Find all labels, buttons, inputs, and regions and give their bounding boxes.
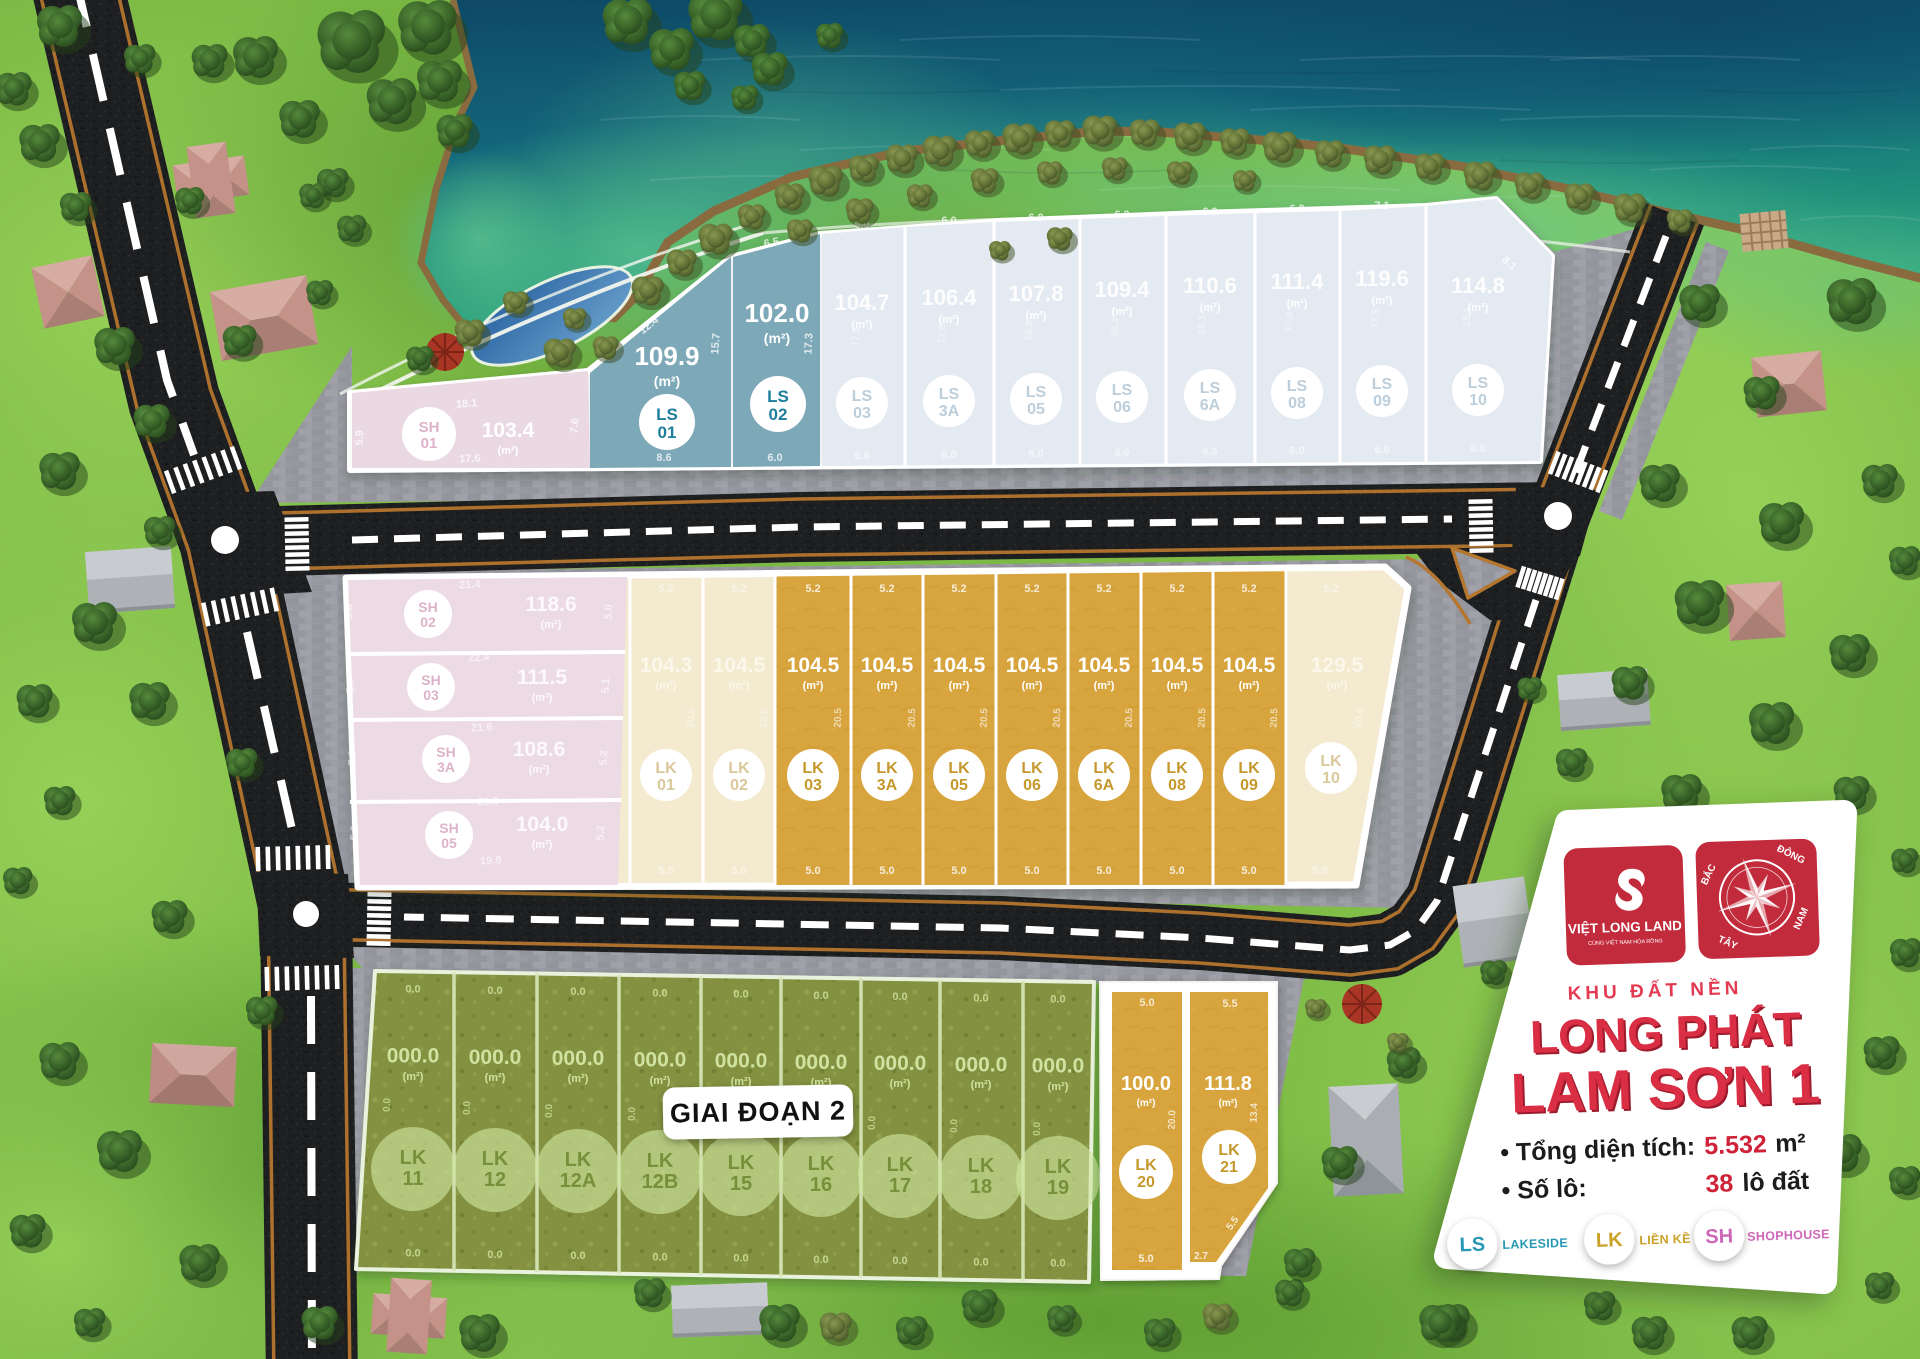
svg-text:5.0: 5.0 — [603, 604, 616, 620]
svg-text:(m²): (m²) — [485, 1072, 506, 1084]
svg-text:5.2: 5.2 — [1096, 583, 1111, 595]
svg-text:LK: LK — [887, 1154, 914, 1176]
svg-text:(m²): (m²) — [729, 680, 750, 692]
svg-text:0.0: 0.0 — [733, 1253, 748, 1265]
svg-text:17.8: 17.8 — [1284, 311, 1296, 331]
svg-text:LK: LK — [1238, 760, 1260, 777]
svg-text:LK: LK — [400, 1147, 427, 1169]
svg-text:000.0: 000.0 — [387, 1045, 440, 1068]
svg-text:(m²): (m²) — [529, 764, 550, 776]
svg-text:5.0: 5.0 — [347, 750, 360, 766]
svg-text:0.0: 0.0 — [627, 1106, 638, 1121]
svg-text:0.0: 0.0 — [570, 986, 585, 998]
svg-text:119.6: 119.6 — [1355, 266, 1409, 291]
svg-text:LS: LS — [1372, 376, 1393, 393]
svg-text:17.6: 17.6 — [459, 453, 481, 466]
svg-text:(m²): (m²) — [1112, 306, 1133, 318]
svg-text:LK: LK — [802, 760, 824, 777]
svg-text:02: 02 — [420, 614, 436, 630]
svg-text:6.0: 6.0 — [1202, 446, 1217, 458]
svg-text:0.0: 0.0 — [973, 992, 988, 1004]
svg-text:6.0: 6.0 — [1028, 212, 1043, 224]
svg-text:000.0: 000.0 — [715, 1050, 768, 1073]
svg-text:LK: LK — [728, 1152, 755, 1174]
svg-text:(m²): (m²) — [568, 1073, 589, 1085]
svg-text:SH: SH — [436, 744, 455, 760]
svg-text:17.3: 17.3 — [802, 333, 815, 355]
svg-text:01: 01 — [657, 777, 675, 794]
svg-text:03: 03 — [804, 777, 822, 794]
svg-text:19.9: 19.9 — [480, 854, 502, 867]
svg-text:5.0: 5.0 — [658, 865, 673, 877]
svg-text:LK: LK — [1021, 760, 1043, 777]
svg-text:LK: LK — [728, 760, 750, 777]
svg-text:5.0: 5.0 — [345, 678, 358, 694]
svg-text:104.5: 104.5 — [861, 654, 914, 677]
svg-text:104.7: 104.7 — [834, 290, 889, 315]
svg-text:SH: SH — [1705, 1225, 1734, 1248]
svg-text:LK: LK — [1135, 1157, 1157, 1174]
svg-text:5.2: 5.2 — [1323, 583, 1338, 595]
svg-text:0.0: 0.0 — [544, 1103, 555, 1118]
svg-text:(m²): (m²) — [498, 445, 519, 457]
svg-text:01: 01 — [658, 423, 677, 442]
svg-text:000.0: 000.0 — [795, 1051, 848, 1074]
svg-text:6.0: 6.0 — [1114, 447, 1129, 459]
svg-text:100.0: 100.0 — [1121, 1073, 1171, 1095]
svg-text:000.0: 000.0 — [955, 1053, 1008, 1076]
svg-text:5.0: 5.0 — [1138, 1253, 1153, 1265]
svg-text:LS: LS — [1112, 382, 1133, 399]
svg-text:20.5: 20.5 — [907, 708, 919, 728]
svg-text:5.2: 5.2 — [805, 583, 820, 595]
svg-text:5.2: 5.2 — [951, 583, 966, 595]
svg-text:(m²): (m²) — [1167, 680, 1188, 692]
svg-text:0.0: 0.0 — [867, 1115, 878, 1130]
svg-text:5.0: 5.0 — [1096, 865, 1111, 877]
svg-text:5.2: 5.2 — [1024, 583, 1039, 595]
svg-text:21.4: 21.4 — [459, 578, 482, 591]
svg-text:7.1: 7.1 — [1374, 200, 1389, 212]
svg-text:12A: 12A — [560, 1170, 597, 1192]
svg-text:5.0: 5.0 — [951, 865, 966, 877]
svg-text:000.0: 000.0 — [552, 1047, 605, 1070]
svg-text:LK: LK — [482, 1148, 509, 1170]
svg-text:18: 18 — [970, 1176, 992, 1198]
svg-text:0.0: 0.0 — [1032, 1121, 1043, 1136]
svg-text:6.0: 6.0 — [1114, 209, 1129, 221]
svg-text:(m²): (m²) — [403, 1071, 424, 1083]
svg-text:17.8: 17.8 — [937, 323, 949, 343]
svg-text:5.2: 5.2 — [595, 825, 608, 841]
svg-text:03: 03 — [423, 687, 439, 703]
svg-text:111.4: 111.4 — [1271, 269, 1324, 294]
svg-text:20.0: 20.0 — [1167, 1110, 1179, 1130]
svg-text:104.3: 104.3 — [640, 654, 693, 677]
svg-text:LK: LK — [647, 1150, 674, 1172]
svg-text:LK: LK — [968, 1155, 995, 1177]
svg-text:(m²): (m²) — [971, 1079, 992, 1091]
svg-text:0.0: 0.0 — [570, 1250, 585, 1262]
svg-text:12B: 12B — [642, 1171, 679, 1193]
svg-text:06: 06 — [1113, 399, 1131, 416]
svg-text:0.0: 0.0 — [382, 1097, 393, 1112]
svg-text:6.0: 6.0 — [941, 449, 956, 461]
svg-text:LS: LS — [1026, 384, 1047, 401]
svg-text:(m²): (m²) — [1137, 1098, 1156, 1109]
svg-text:05: 05 — [441, 835, 457, 851]
svg-text:lô đất: lô đất — [1742, 1167, 1810, 1197]
svg-text:(m²): (m²) — [1239, 680, 1260, 692]
svg-text:104.5: 104.5 — [1006, 654, 1059, 677]
svg-text:0.0: 0.0 — [892, 991, 907, 1003]
svg-text:(m²): (m²) — [890, 1078, 911, 1090]
svg-text:20.5: 20.5 — [1124, 708, 1136, 728]
svg-text:6.0: 6.0 — [1374, 444, 1389, 456]
svg-text:(m²): (m²) — [1219, 1098, 1238, 1109]
svg-text:15.7: 15.7 — [709, 333, 722, 355]
svg-text:5.0: 5.0 — [731, 865, 746, 877]
svg-text:109.9: 109.9 — [634, 341, 699, 371]
svg-text:LAKESIDE: LAKESIDE — [1502, 1236, 1568, 1252]
svg-text:104.5: 104.5 — [1078, 654, 1131, 677]
svg-text:3A: 3A — [877, 777, 898, 794]
svg-text:5.9: 5.9 — [354, 430, 367, 446]
svg-text:09: 09 — [1373, 393, 1391, 410]
svg-text:20.5: 20.5 — [833, 708, 845, 728]
svg-text:20.5: 20.5 — [1197, 708, 1209, 728]
svg-text:SH: SH — [421, 672, 440, 688]
svg-text:5.2: 5.2 — [731, 583, 746, 595]
svg-text:LIỀN KỀ: LIỀN KỀ — [1639, 1231, 1691, 1248]
svg-text:104.5: 104.5 — [933, 654, 986, 677]
svg-text:LS: LS — [767, 387, 789, 406]
svg-text:5.0: 5.0 — [1139, 997, 1154, 1009]
svg-text:LK: LK — [876, 760, 898, 777]
svg-text:02: 02 — [769, 405, 788, 424]
svg-text:20.5: 20.5 — [1269, 708, 1281, 728]
svg-text:• Số lô:: • Số lô: — [1501, 1174, 1587, 1205]
svg-text:106.4: 106.4 — [921, 285, 977, 310]
svg-text:000.0: 000.0 — [1032, 1054, 1085, 1077]
svg-text:6A: 6A — [1200, 397, 1221, 414]
svg-text:LK: LK — [808, 1153, 835, 1175]
svg-text:0.0: 0.0 — [487, 1249, 502, 1261]
svg-text:0.0: 0.0 — [733, 989, 748, 1001]
svg-text:15.1: 15.1 — [1462, 306, 1474, 326]
svg-text:103.4: 103.4 — [482, 419, 535, 442]
svg-text:5.532: 5.532 — [1704, 1130, 1767, 1160]
svg-text:6.0: 6.0 — [1289, 203, 1304, 215]
svg-text:5.2: 5.2 — [598, 750, 611, 766]
svg-text:5.0: 5.0 — [349, 825, 362, 841]
svg-text:(m²): (m²) — [654, 373, 680, 389]
svg-text:(m²): (m²) — [1022, 680, 1043, 692]
svg-text:108.6: 108.6 — [513, 738, 566, 761]
svg-text:18.1: 18.1 — [456, 397, 478, 411]
svg-text:5.2: 5.2 — [1169, 583, 1184, 595]
svg-text:(m²): (m²) — [1026, 310, 1047, 322]
svg-text:7.6: 7.6 — [568, 418, 581, 434]
svg-text:19: 19 — [1047, 1177, 1069, 1199]
svg-text:0.0: 0.0 — [949, 1118, 960, 1133]
svg-text:0.0: 0.0 — [405, 1248, 420, 1260]
svg-text:129.5: 129.5 — [1311, 654, 1364, 677]
svg-text:(m²): (m²) — [764, 330, 790, 346]
svg-text:SHOPHOUSE: SHOPHOUSE — [1747, 1227, 1830, 1244]
svg-text:21.6: 21.6 — [471, 721, 493, 734]
svg-text:102.0: 102.0 — [744, 298, 809, 328]
svg-text:109.4: 109.4 — [1094, 277, 1150, 302]
svg-text:LK: LK — [655, 760, 677, 777]
svg-text:12: 12 — [484, 1169, 506, 1191]
svg-text:(m²): (m²) — [1200, 302, 1221, 314]
svg-text:0.0: 0.0 — [462, 1100, 473, 1115]
svg-text:6.0: 6.0 — [1470, 443, 1485, 455]
svg-text:SH: SH — [439, 820, 458, 836]
svg-text:(m²): (m²) — [803, 680, 824, 692]
svg-text:20: 20 — [1137, 1174, 1155, 1191]
svg-text:107.8: 107.8 — [1008, 281, 1063, 306]
svg-text:(m²): (m²) — [1327, 680, 1348, 692]
svg-text:20.8: 20.8 — [477, 795, 499, 808]
svg-text:05: 05 — [1027, 401, 1045, 418]
svg-text:0.0: 0.0 — [405, 984, 420, 996]
svg-text:10: 10 — [1469, 392, 1487, 409]
svg-text:SH: SH — [419, 419, 440, 436]
svg-text:104.5: 104.5 — [713, 654, 766, 677]
svg-text:(m²): (m²) — [650, 1075, 671, 1087]
svg-text:LS: LS — [1459, 1234, 1485, 1257]
svg-text:18.3: 18.3 — [1024, 320, 1036, 340]
svg-text:5.0: 5.0 — [879, 865, 894, 877]
svg-text:0.0: 0.0 — [652, 1251, 667, 1263]
svg-text:000.0: 000.0 — [634, 1048, 687, 1071]
svg-text:2.7: 2.7 — [1194, 1251, 1208, 1262]
svg-text:0.0: 0.0 — [813, 1254, 828, 1266]
svg-text:104.5: 104.5 — [787, 654, 840, 677]
svg-text:21: 21 — [1220, 1159, 1238, 1176]
svg-text:09: 09 — [1240, 777, 1258, 794]
svg-text:114.8: 114.8 — [1451, 273, 1505, 298]
svg-text:(m²): (m²) — [1372, 295, 1393, 307]
svg-text:02: 02 — [730, 777, 748, 794]
svg-text:16: 16 — [810, 1174, 832, 1196]
svg-text:(m²): (m²) — [541, 619, 562, 631]
svg-text:0.0: 0.0 — [487, 985, 502, 997]
svg-text:m²: m² — [1775, 1129, 1806, 1158]
svg-text:GIAI ĐOẠN 2: GIAI ĐOẠN 2 — [670, 1095, 847, 1128]
svg-text:118.6: 118.6 — [525, 593, 576, 616]
svg-text:18.3: 18.3 — [1197, 314, 1209, 334]
svg-text:0.0: 0.0 — [892, 1255, 907, 1267]
svg-text:17.5: 17.5 — [851, 326, 863, 346]
svg-text:3.8: 3.8 — [343, 604, 356, 620]
svg-text:(m²): (m²) — [1287, 298, 1308, 310]
svg-text:6A: 6A — [1094, 777, 1115, 794]
svg-text:6.0: 6.0 — [1202, 206, 1217, 218]
svg-text:LK: LK — [1218, 1142, 1240, 1159]
svg-text:LK: LK — [948, 760, 970, 777]
svg-text:5.0: 5.0 — [1169, 865, 1184, 877]
svg-text:LK: LK — [1093, 760, 1115, 777]
svg-text:38: 38 — [1705, 1169, 1734, 1198]
svg-text:LS: LS — [939, 386, 960, 403]
svg-text:LS: LS — [852, 388, 873, 405]
svg-text:LAM SƠN 1: LAM SƠN 1 — [1510, 1051, 1821, 1124]
svg-text:6.0: 6.0 — [854, 450, 869, 462]
svg-text:LK: LK — [1596, 1229, 1624, 1252]
svg-text:SH: SH — [418, 599, 437, 615]
svg-text:6.0: 6.0 — [1289, 445, 1304, 457]
svg-text:LK: LK — [565, 1149, 592, 1171]
svg-text:104.0: 104.0 — [516, 813, 569, 836]
svg-text:0.0: 0.0 — [973, 1256, 988, 1268]
svg-text:20.5: 20.5 — [1052, 708, 1064, 728]
svg-text:LK: LK — [1166, 760, 1188, 777]
svg-text:(m²): (m²) — [949, 680, 970, 692]
svg-text:3A: 3A — [437, 759, 455, 775]
svg-text:5.5: 5.5 — [1222, 998, 1237, 1010]
svg-text:111.8: 111.8 — [1204, 1073, 1252, 1095]
svg-text:0.0: 0.0 — [1050, 993, 1065, 1005]
svg-text:03: 03 — [853, 405, 871, 422]
svg-text:104.5: 104.5 — [1151, 654, 1204, 677]
svg-text:10: 10 — [1322, 770, 1340, 787]
svg-text:5.2: 5.2 — [879, 583, 894, 595]
svg-text:22.4: 22.4 — [468, 651, 491, 664]
svg-text:08: 08 — [1168, 777, 1186, 794]
svg-text:05: 05 — [950, 777, 968, 794]
svg-text:5.0: 5.0 — [805, 865, 820, 877]
svg-text:17.5: 17.5 — [1370, 308, 1382, 328]
svg-text:0.0: 0.0 — [813, 990, 828, 1002]
svg-text:LS: LS — [1200, 380, 1221, 397]
svg-text:LS: LS — [1287, 378, 1308, 395]
svg-text:13.4: 13.4 — [1249, 1103, 1261, 1123]
svg-text:000.0: 000.0 — [874, 1052, 927, 1075]
svg-text:01: 01 — [421, 435, 438, 452]
svg-text:110.6: 110.6 — [1183, 273, 1237, 298]
svg-text:0.0: 0.0 — [1050, 1257, 1065, 1269]
svg-text:20.5: 20.5 — [979, 708, 991, 728]
svg-text:5.0: 5.0 — [1312, 865, 1327, 877]
svg-text:6.0: 6.0 — [1028, 448, 1043, 460]
svg-text:(m²): (m²) — [532, 692, 553, 704]
svg-text:000.0: 000.0 — [469, 1046, 522, 1069]
svg-text:15: 15 — [730, 1173, 752, 1195]
svg-text:6.0: 6.0 — [941, 215, 956, 227]
svg-text:LK: LK — [1045, 1156, 1072, 1178]
svg-text:5.2: 5.2 — [658, 583, 673, 595]
svg-text:06: 06 — [1023, 777, 1041, 794]
svg-text:5.2: 5.2 — [1241, 583, 1256, 595]
svg-text:LK: LK — [1320, 753, 1342, 770]
svg-text:111.5: 111.5 — [517, 666, 568, 689]
svg-text:3A: 3A — [939, 403, 960, 420]
svg-text:(m²): (m²) — [877, 680, 898, 692]
svg-text:0.0: 0.0 — [652, 987, 667, 999]
svg-text:5.1: 5.1 — [600, 678, 613, 694]
svg-text:8.6: 8.6 — [656, 452, 671, 464]
svg-text:LS: LS — [1468, 375, 1489, 392]
svg-text:(m²): (m²) — [1094, 680, 1115, 692]
svg-text:08: 08 — [1288, 395, 1306, 412]
svg-text:17: 17 — [889, 1175, 911, 1197]
svg-text:5.0: 5.0 — [1241, 865, 1256, 877]
svg-text:5.0: 5.0 — [1024, 865, 1039, 877]
svg-text:11: 11 — [402, 1168, 423, 1190]
svg-text:20.5: 20.5 — [686, 708, 698, 728]
svg-text:(m²): (m²) — [532, 839, 553, 851]
svg-text:6.0: 6.0 — [767, 452, 782, 464]
svg-text:104.5: 104.5 — [1223, 654, 1276, 677]
svg-text:20.5: 20.5 — [759, 708, 771, 728]
svg-text:18.3: 18.3 — [1110, 317, 1122, 337]
svg-text:LS: LS — [656, 405, 678, 424]
svg-text:(m²): (m²) — [1048, 1081, 1069, 1093]
svg-text:(m²): (m²) — [656, 680, 677, 692]
